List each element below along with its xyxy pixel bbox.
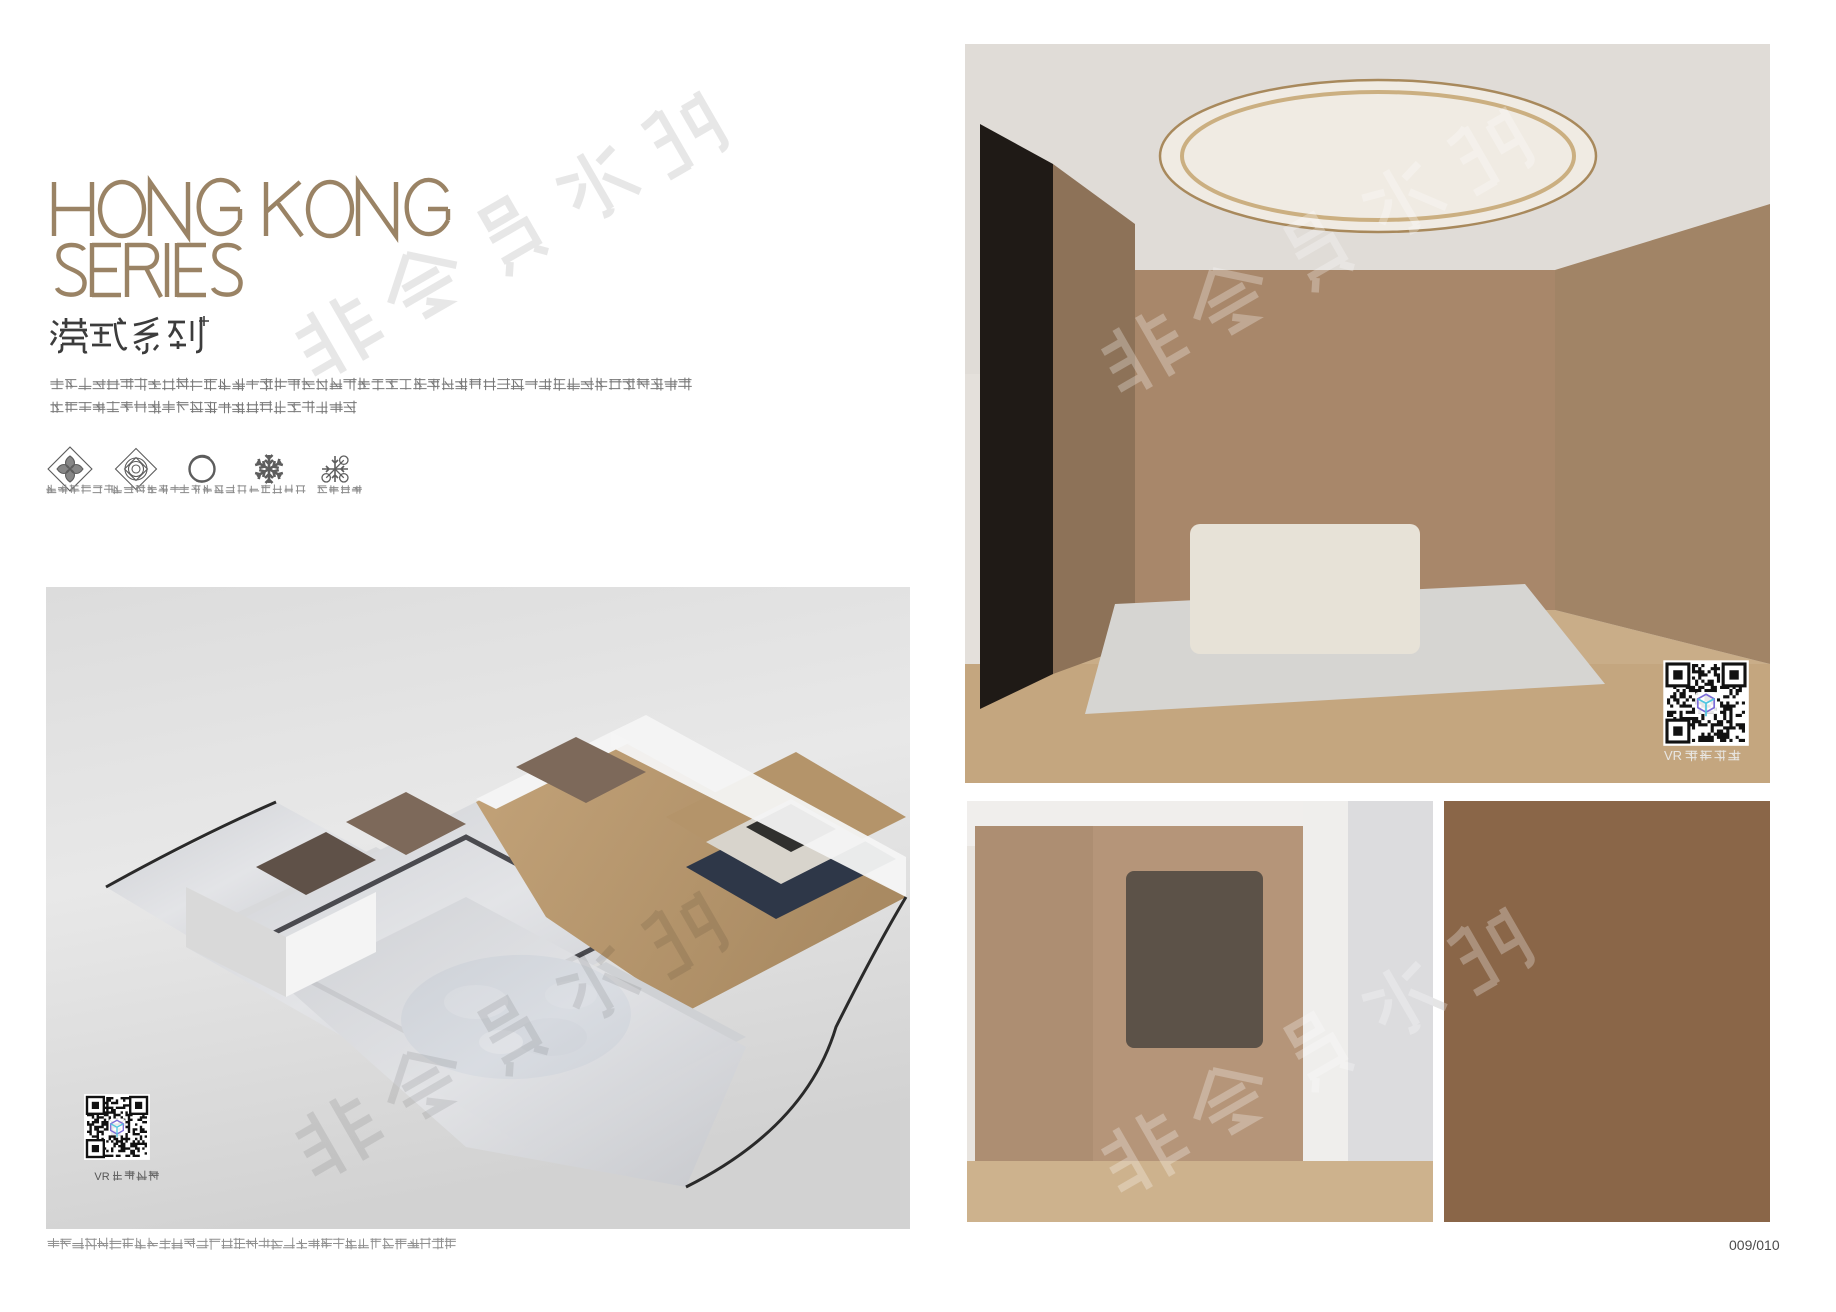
svg-text:VR: VR <box>94 1171 109 1183</box>
svg-text:009/010: 009/010 <box>1729 1237 1780 1253</box>
svg-text:VR: VR <box>1664 748 1682 763</box>
